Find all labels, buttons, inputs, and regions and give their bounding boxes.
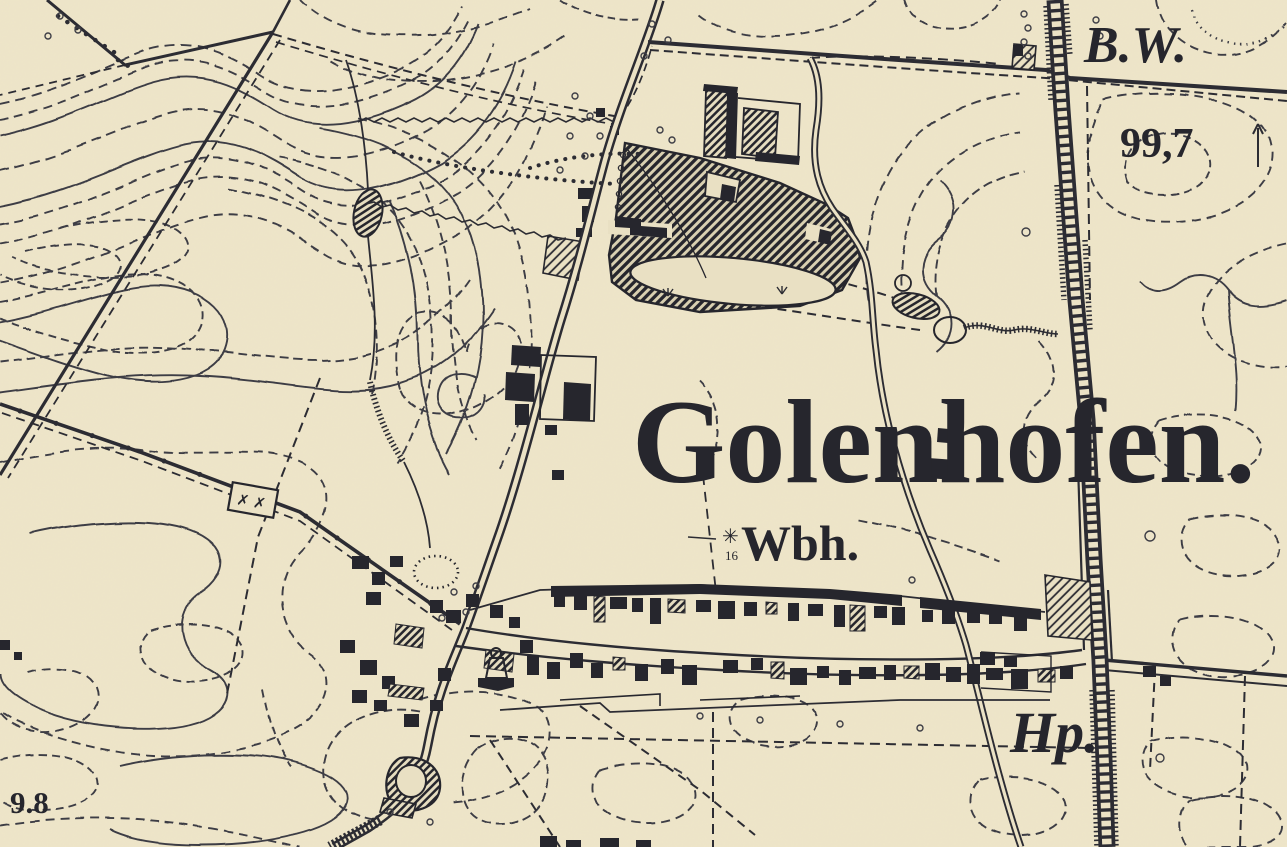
svg-text:16: 16 (725, 548, 739, 563)
svg-text:B.W.: B.W. (1083, 17, 1187, 74)
svg-text:✳: ✳ (722, 526, 739, 548)
svg-text:99,7: 99,7 (1120, 121, 1194, 167)
svg-text:9.8: 9.8 (10, 785, 49, 820)
svg-text:Golenhofen.: Golenhofen. (632, 375, 1255, 508)
svg-text:Hp.: Hp. (1009, 700, 1099, 765)
svg-text:Wbh.: Wbh. (741, 515, 859, 571)
